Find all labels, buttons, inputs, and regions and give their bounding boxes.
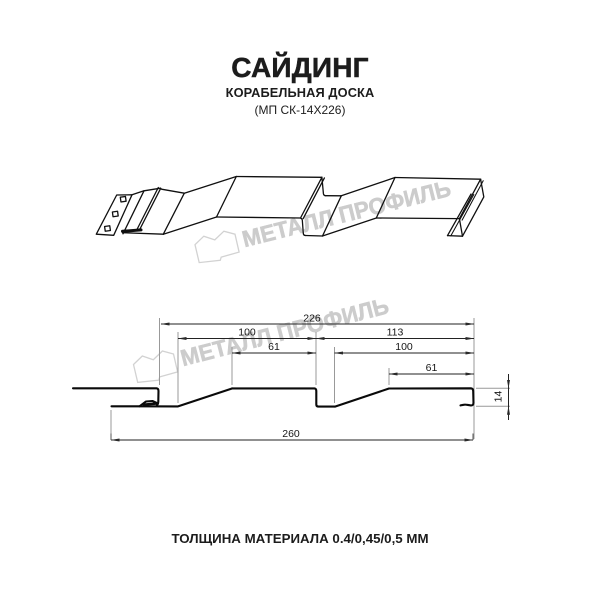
svg-text:113: 113 bbox=[387, 327, 404, 339]
svg-text:100: 100 bbox=[238, 327, 256, 339]
svg-text:61: 61 bbox=[426, 362, 438, 374]
svg-text:14: 14 bbox=[493, 391, 505, 403]
svg-text:226: 226 bbox=[303, 313, 321, 325]
svg-text:100: 100 bbox=[395, 341, 413, 353]
svg-text:61: 61 bbox=[268, 341, 280, 353]
svg-text:МЕТАЛЛ ПРОФИЛЬ: МЕТАЛЛ ПРОФИЛЬ bbox=[239, 175, 453, 252]
svg-text:260: 260 bbox=[282, 428, 300, 440]
svg-text:МЕТАЛЛ ПРОФИЛЬ: МЕТАЛЛ ПРОФИЛЬ bbox=[178, 292, 392, 371]
